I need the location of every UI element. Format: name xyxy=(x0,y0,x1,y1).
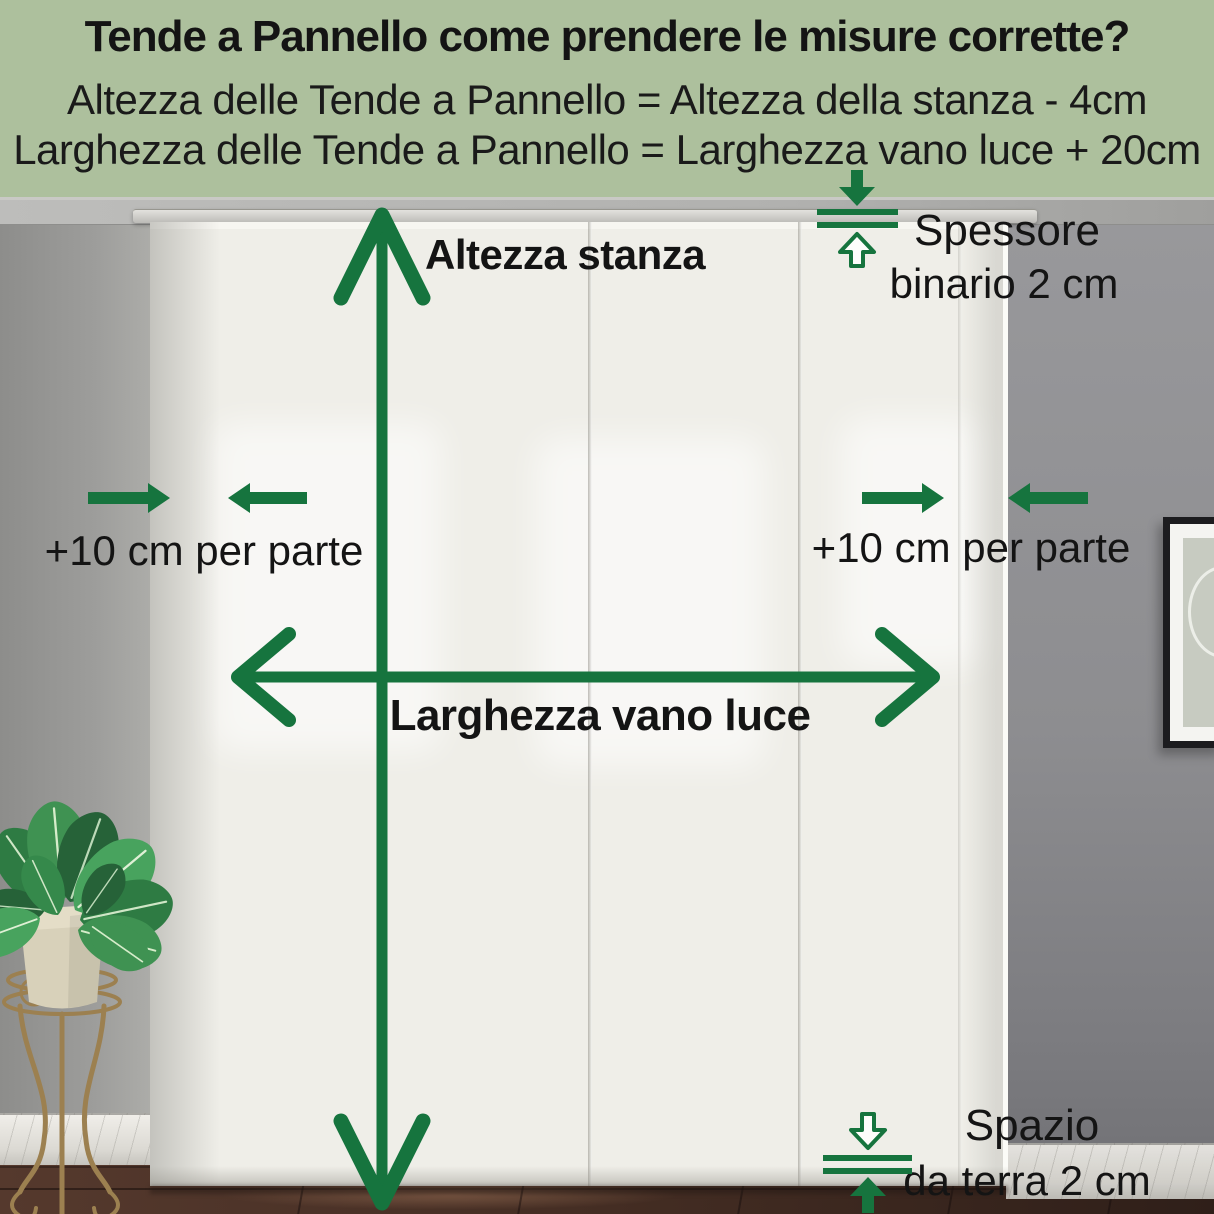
rail-thickness-label-line1: Spessore xyxy=(914,206,1100,256)
framed-artwork xyxy=(1183,538,1214,727)
curtain-top-fold xyxy=(150,222,1008,229)
curtain-rail xyxy=(133,209,1037,223)
floor-gap-label-line2: da terra 2 cm xyxy=(903,1157,1150,1205)
room-height-label: Altezza stanza xyxy=(425,231,705,279)
curtain-right-edge-highlight xyxy=(958,222,1008,1186)
width-formula: Larghezza delle Tende a Pannello = Largh… xyxy=(0,126,1214,174)
window-width-label: Larghezza vano luce xyxy=(390,691,811,741)
height-formula: Altezza delle Tende a Pannello = Altezza… xyxy=(0,76,1214,124)
potted-plant xyxy=(0,740,215,1214)
curtain-floor-shadow xyxy=(150,1186,1008,1194)
artwork-circle-motif xyxy=(1188,566,1214,658)
side-margin-left-label: +10 cm per parte xyxy=(45,527,364,575)
picture-frame xyxy=(1163,517,1214,748)
page-title: Tende a Pannello come prendere le misure… xyxy=(0,12,1214,62)
rail-thickness-label-line2: binario 2 cm xyxy=(890,260,1119,308)
side-margin-right-label: +10 cm per parte xyxy=(812,524,1131,572)
curtain-hem xyxy=(150,1166,1008,1186)
floor-gap-label-line1: Spazio xyxy=(965,1101,1100,1151)
measurement-infographic: Tende a Pannello come prendere le misure… xyxy=(0,0,1214,1214)
header-band: Tende a Pannello come prendere le misure… xyxy=(0,0,1214,197)
